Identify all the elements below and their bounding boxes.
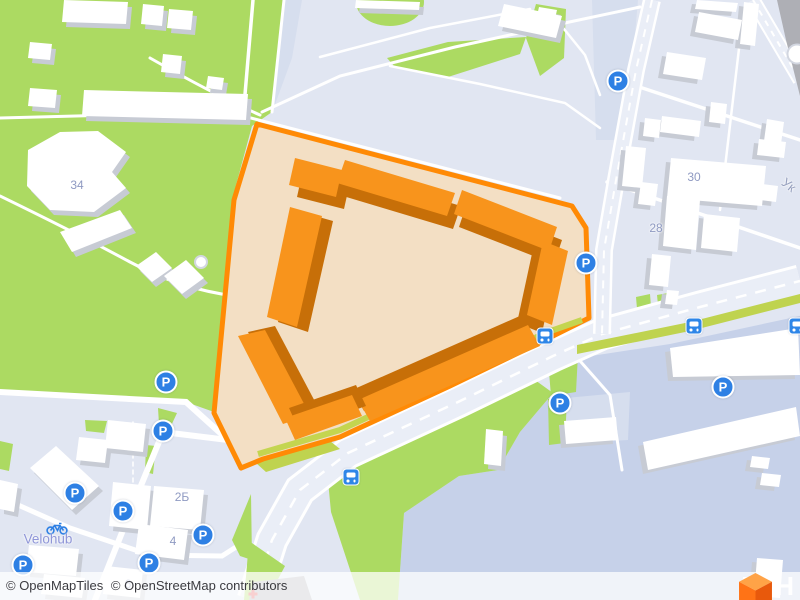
poi-circle-icon	[787, 44, 800, 65]
building-label: 2Б	[175, 491, 190, 503]
parking-icon: P	[549, 392, 572, 415]
marker-layer: PPPPPPPPPPP3430282Б46УкVelohub	[0, 0, 800, 600]
bus-stop-icon	[789, 318, 800, 335]
building-label: 28	[649, 222, 662, 234]
logo-cube-icon	[739, 573, 772, 600]
street-label: Ук	[779, 175, 798, 194]
bus-stop-icon	[686, 318, 703, 335]
attribution-openmaptiles-link[interactable]: © OpenMapTiles	[6, 578, 103, 593]
building-label: 34	[70, 179, 83, 191]
parking-icon: P	[112, 500, 135, 523]
parking-icon: P	[575, 252, 598, 275]
poi-circle-icon	[194, 255, 208, 269]
parking-icon: P	[155, 371, 178, 394]
building-label: 4	[170, 535, 177, 547]
parking-icon: P	[712, 376, 735, 399]
brand-logo[interactable]: ЛУН	[739, 573, 795, 599]
parking-icon: P	[607, 70, 630, 93]
parking-icon: P	[192, 524, 215, 547]
bus-stop-icon	[537, 328, 554, 345]
parking-icon: P	[64, 482, 87, 505]
poi-label-velohub: Velohub	[24, 532, 73, 546]
building-label: 30	[687, 171, 700, 183]
attribution-osm-link[interactable]: © OpenStreetMap contributors	[111, 578, 288, 593]
parking-icon: P	[152, 420, 175, 443]
map-canvas[interactable]: PPPPPPPPPPP3430282Б46УкVelohub © OpenMap…	[0, 0, 800, 600]
attribution-bar: © OpenMapTiles © OpenStreetMap contribut…	[0, 572, 800, 600]
bus-stop-icon	[343, 469, 360, 486]
